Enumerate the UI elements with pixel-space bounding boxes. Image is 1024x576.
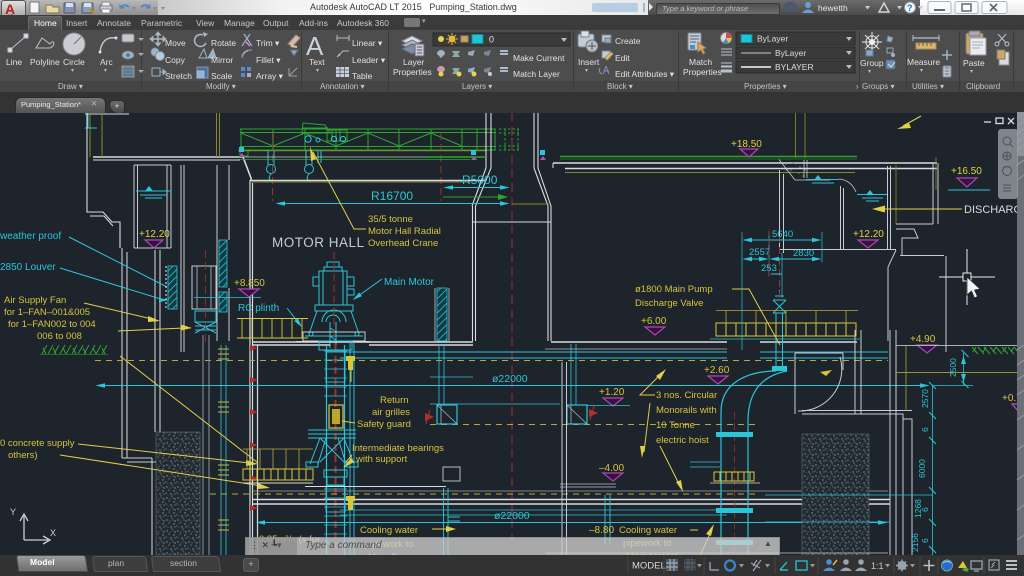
svg-text:Cooling water: Cooling water: [360, 525, 418, 536]
svg-text:–4.00: –4.00: [599, 463, 624, 474]
svg-text:Main Motor: Main Motor: [384, 277, 435, 288]
svg-text:10 Tonne: 10 Tonne: [656, 420, 695, 431]
svg-text:RC plinth: RC plinth: [238, 303, 279, 314]
svg-text:R5000: R5000: [462, 173, 498, 187]
svg-text:2156: 2156: [910, 533, 920, 552]
svg-text:1268: 1268: [913, 499, 923, 518]
svg-text:+6.00: +6.00: [641, 316, 667, 327]
svg-text:2570: 2570: [920, 389, 930, 408]
svg-text:Monorails with: Monorails with: [656, 405, 717, 416]
svg-text:6: 6: [920, 538, 930, 543]
svg-text:Discharge Valve: Discharge Valve: [635, 298, 703, 309]
svg-text:DISCHARG: DISCHARG: [964, 204, 1022, 216]
svg-text:5640: 5640: [772, 229, 793, 240]
svg-text:MODEL: MODEL: [632, 561, 666, 572]
svg-text:Overhead Crane: Overhead Crane: [368, 238, 438, 249]
svg-text:weather proof: weather proof: [0, 231, 61, 242]
svg-text:2830: 2830: [793, 248, 814, 259]
svg-text:ø22000: ø22000: [492, 373, 528, 385]
svg-text:+1.20: +1.20: [599, 387, 625, 398]
svg-text:Y: Y: [10, 507, 16, 517]
svg-text:+2.60: +2.60: [704, 365, 730, 376]
svg-text:2850 Louver: 2850 Louver: [0, 262, 56, 273]
svg-text:Motor Hall Radial: Motor Hall Radial: [368, 226, 441, 237]
svg-text:Air Supply Fan: Air Supply Fan: [4, 295, 66, 306]
svg-text:air grilles: air grilles: [372, 407, 410, 418]
svg-text:Safety guard: Safety guard: [357, 419, 411, 430]
svg-text:6000: 6000: [917, 459, 927, 478]
svg-text:+16.50: +16.50: [951, 166, 982, 177]
svg-text:MOTOR HALL: MOTOR HALL: [272, 235, 365, 250]
svg-text:6: 6: [920, 427, 930, 432]
svg-text:Return: Return: [380, 395, 409, 406]
svg-text:0 concrete supply: 0 concrete supply: [0, 438, 75, 449]
svg-text:+12.20: +12.20: [139, 229, 170, 240]
svg-text:35/5 tonne: 35/5 tonne: [368, 214, 413, 225]
svg-text:–8.80: –8.80: [589, 525, 614, 536]
svg-text:Cooling water: Cooling water: [619, 525, 677, 536]
svg-text:+0.: +0.: [1002, 393, 1016, 404]
svg-text:with support: with support: [355, 454, 408, 465]
svg-text:R16700: R16700: [371, 189, 413, 203]
svg-text:+8.850: +8.850: [234, 278, 265, 289]
svg-text:+18.50: +18.50: [731, 139, 762, 150]
svg-text:Intermediate bearings: Intermediate bearings: [352, 443, 444, 454]
svg-text:2557: 2557: [749, 247, 770, 258]
svg-text:+4.90: +4.90: [910, 334, 936, 345]
svg-text:for 1–FAN002 to 004: for 1–FAN002 to 004: [8, 319, 96, 330]
svg-text:3 nos. Circular: 3 nos. Circular: [656, 390, 717, 401]
svg-text:ø1800 Main Pump: ø1800 Main Pump: [635, 284, 713, 295]
svg-text:1:1: 1:1: [871, 561, 884, 571]
svg-text:ø22000: ø22000: [494, 510, 530, 522]
svg-text:+12.20: +12.20: [853, 229, 884, 240]
svg-text:others): others): [8, 450, 38, 461]
svg-text:electric hoist: electric hoist: [656, 435, 709, 446]
svg-text:for 1–FAN–001&005: for 1–FAN–001&005: [4, 307, 90, 318]
svg-text:2500: 2500: [948, 358, 958, 377]
svg-text:006 to 008: 006 to 008: [37, 331, 82, 342]
svg-text:X: X: [50, 528, 56, 538]
